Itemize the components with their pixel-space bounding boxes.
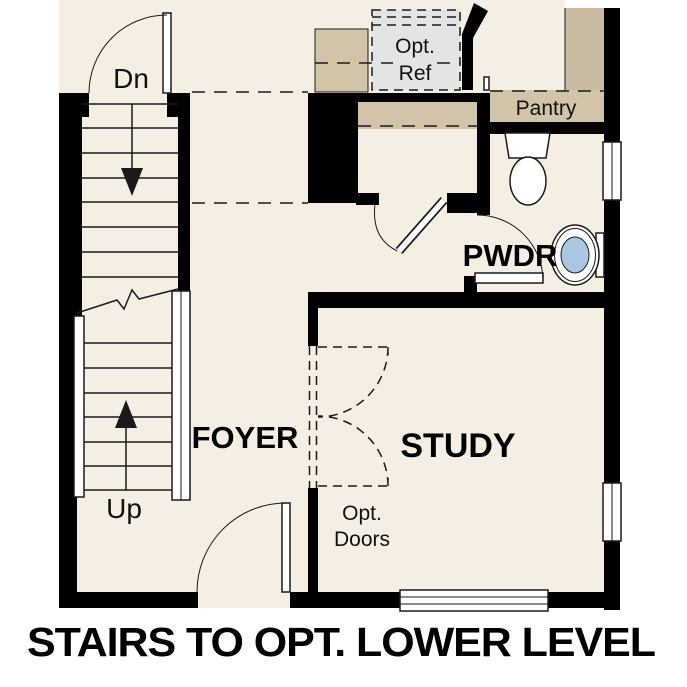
study-bottom-window <box>400 590 548 611</box>
kitchen-door-leaf <box>163 13 171 93</box>
closet-shelf <box>358 102 477 129</box>
kitchen-door-jamb <box>484 77 489 90</box>
stair-down-label: Dn <box>113 63 149 94</box>
wall-top-band <box>308 93 490 102</box>
toilet-tank <box>505 133 550 158</box>
wall-right-middle <box>604 200 620 483</box>
pedestal-sink-basin <box>561 237 589 273</box>
floor-plan-page: Dn Up <box>0 0 687 687</box>
closet-area <box>358 102 477 129</box>
wall-study-top <box>308 292 618 308</box>
kitchen-counter <box>315 29 368 92</box>
entry-door-leaf <box>282 503 290 592</box>
stair-rail-left <box>74 316 84 497</box>
wall-bottom-middle <box>290 592 400 608</box>
opt-ref-label-line1: Opt. <box>395 35 435 58</box>
wall-pwdr-left <box>477 101 490 215</box>
wall-right-upper <box>604 8 620 142</box>
powder-door-leaf <box>475 273 543 283</box>
stair-up-label: Up <box>106 493 142 524</box>
floor-plan: Dn Up <box>0 0 687 687</box>
wall-closet-block <box>308 93 358 203</box>
opt-doors-label-line2: Doors <box>334 528 390 551</box>
plan-caption: STAIRS TO OPT. LOWER LEVEL <box>27 619 655 665</box>
wall-left-upper <box>59 93 82 316</box>
powder-label: PWDR <box>463 238 558 273</box>
wall-study-left-lower <box>308 488 318 592</box>
wall-right-lower <box>604 541 620 610</box>
opt-ref-label-line2: Ref <box>399 62 432 85</box>
wall-stair-right <box>178 93 190 293</box>
pantry-cabinet <box>565 8 604 90</box>
wall-bottom-left <box>59 592 198 608</box>
wall-pantry-bottom <box>490 122 604 134</box>
toilet-bowl <box>510 157 546 205</box>
opt-doors-label-line1: Opt. <box>342 502 382 525</box>
study-label: STUDY <box>400 427 516 465</box>
foyer-label: FOYER <box>192 420 299 455</box>
pantry-label: Pantry <box>516 97 577 120</box>
wall-study-left-upper <box>308 308 318 346</box>
wall-closet-bottom-left <box>356 193 379 205</box>
